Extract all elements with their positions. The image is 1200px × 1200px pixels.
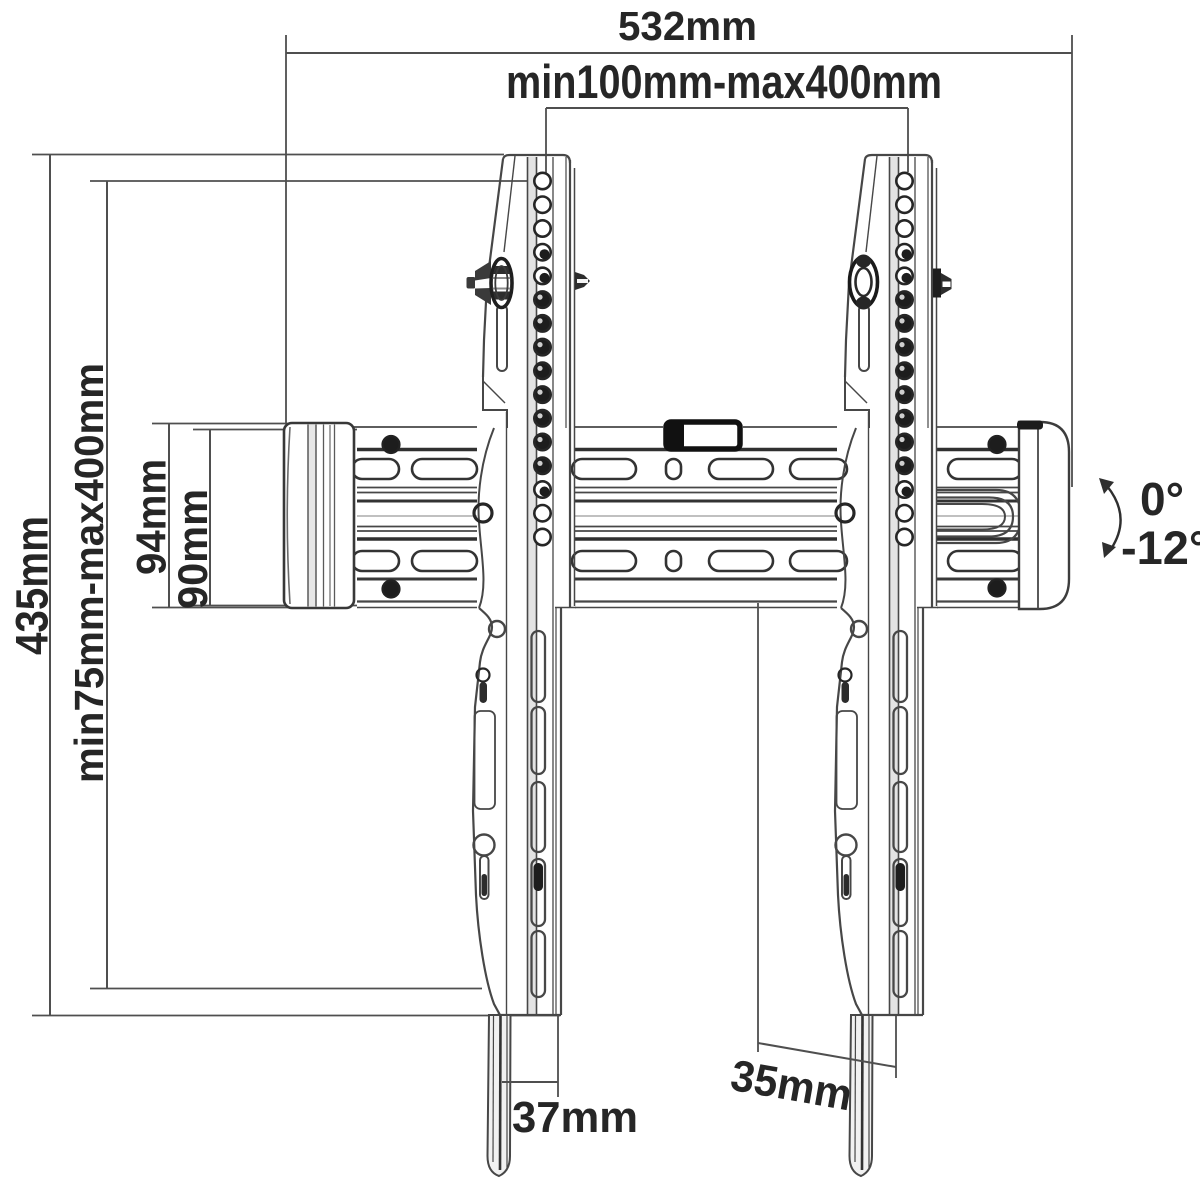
svg-text:-12°: -12° [1121,521,1200,574]
svg-text:94mm: 94mm [128,459,175,575]
svg-text:min100mm-max400mm: min100mm-max400mm [506,55,942,108]
svg-text:435mm: 435mm [7,516,58,655]
svg-text:37mm: 37mm [512,1093,638,1142]
svg-text:532mm: 532mm [618,3,757,49]
svg-text:0°: 0° [1140,473,1184,525]
svg-text:90mm: 90mm [169,489,216,609]
svg-text:min75mm-max400mm: min75mm-max400mm [66,363,112,783]
